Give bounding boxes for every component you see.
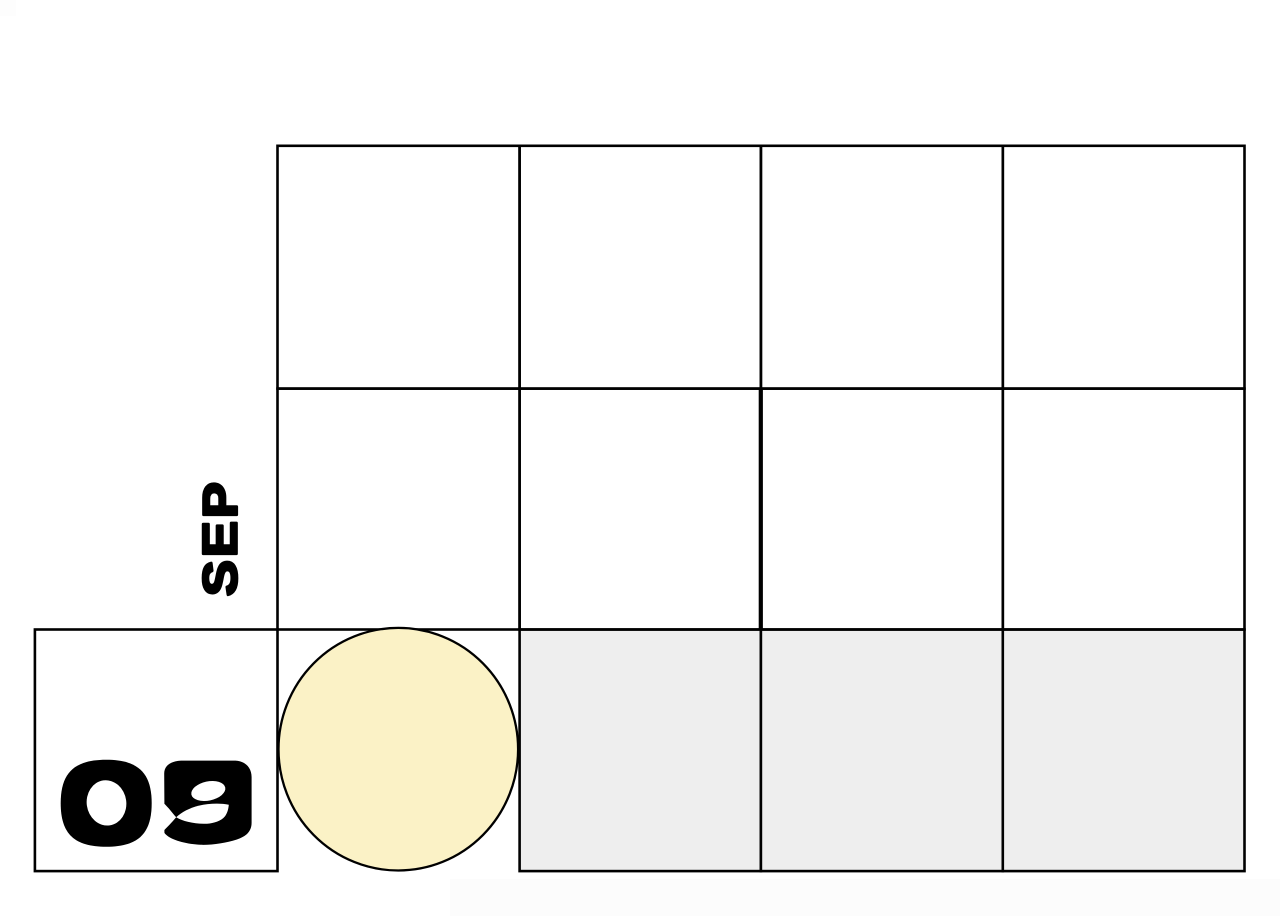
svg-text:SEP: SEP	[193, 479, 246, 596]
